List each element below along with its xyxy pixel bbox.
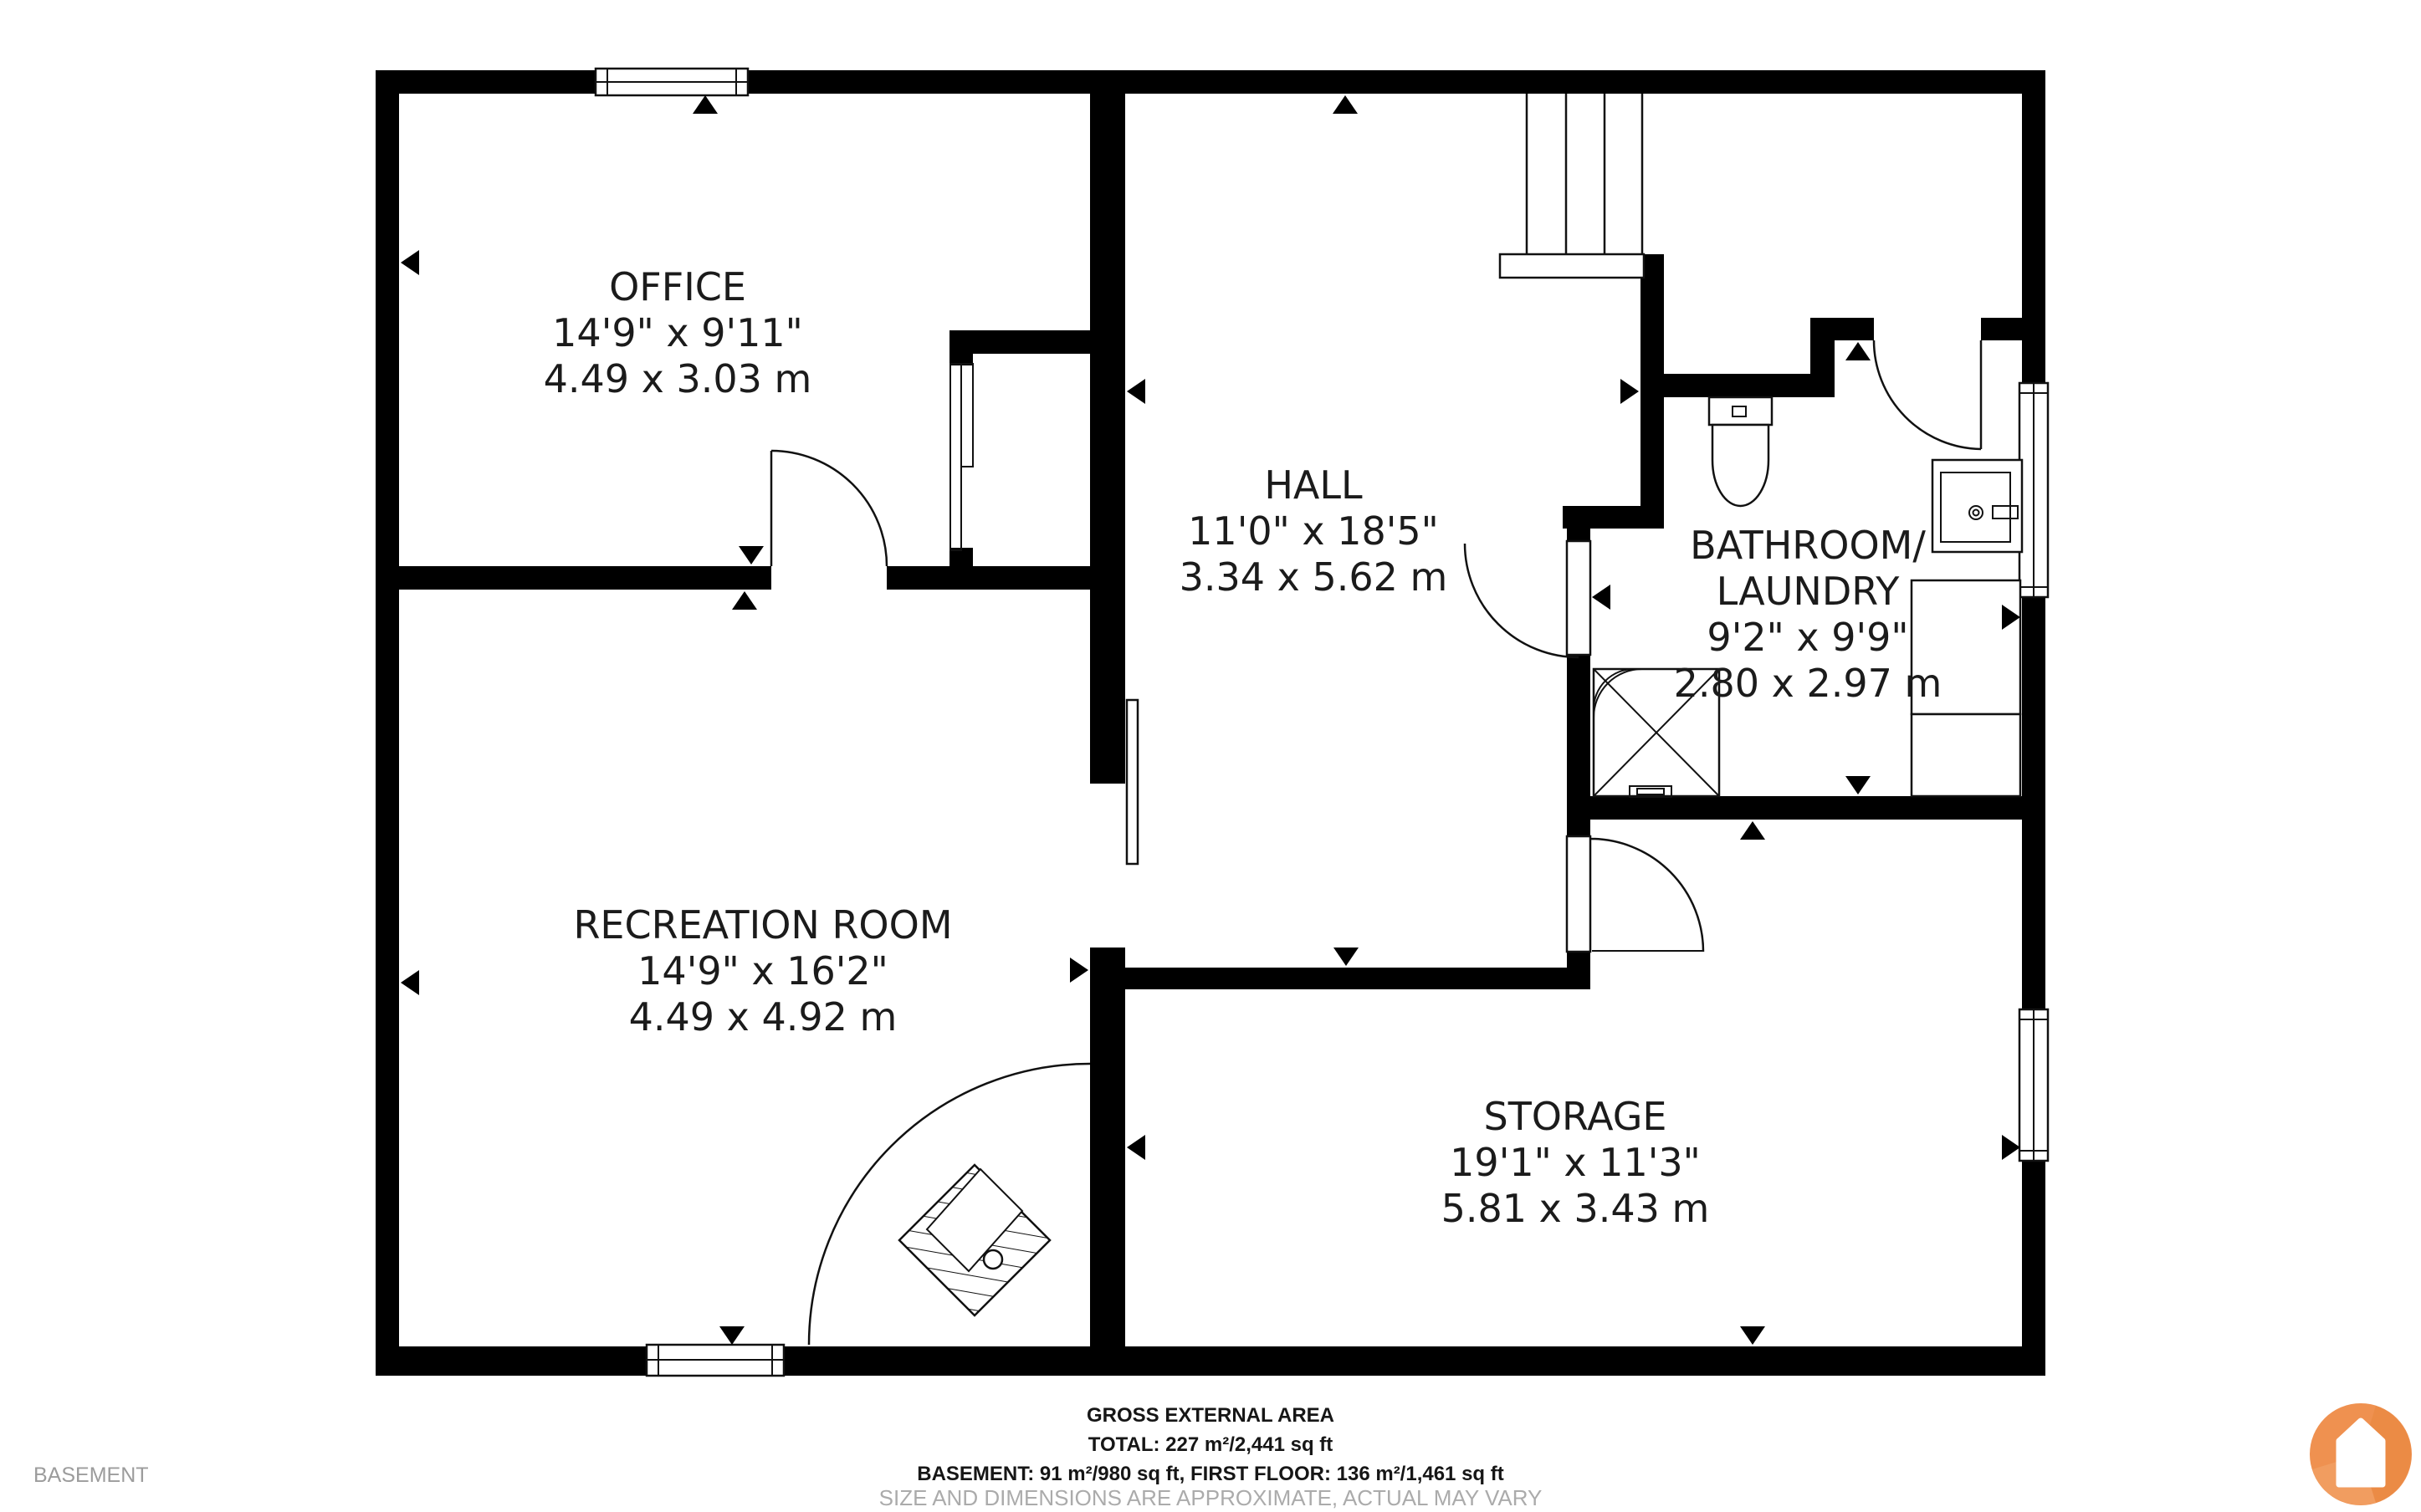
dim-arrow bbox=[1070, 958, 1088, 983]
door-office bbox=[771, 451, 887, 566]
wall-closet-stub-top bbox=[949, 330, 973, 365]
office-label: OFFICE bbox=[609, 264, 746, 309]
wall-stair-side bbox=[1640, 254, 1664, 529]
recreation-dim-metric: 4.49 x 4.92 m bbox=[629, 994, 898, 1039]
wall-hall-storage bbox=[1125, 968, 1590, 989]
footer-total: TOTAL: 227 m²/2,441 sq ft bbox=[1088, 1433, 1333, 1456]
hall-dim-imperial: 11'0" x 18'5" bbox=[1188, 508, 1439, 554]
dim-arrow bbox=[1620, 379, 1639, 404]
wall-left bbox=[376, 70, 399, 1376]
footer: GROSS EXTERNAL AREA TOTAL: 227 m²/2,441 … bbox=[33, 1404, 1542, 1510]
dim-arrow bbox=[1592, 585, 1610, 610]
hall-label: HALL bbox=[1264, 462, 1363, 508]
recreation-label: RECREATION ROOM bbox=[573, 902, 952, 948]
dim-arrow bbox=[1127, 379, 1145, 404]
wall-bath-south bbox=[1590, 796, 2022, 820]
wall-bath-west-mid bbox=[1567, 655, 1590, 836]
door-pocket-hall-rec bbox=[1127, 700, 1138, 864]
windows bbox=[596, 69, 2048, 1376]
door-closet-sliding bbox=[950, 364, 973, 550]
floor-name: BASEMENT bbox=[33, 1463, 149, 1487]
window-bathroom-right bbox=[2019, 383, 2048, 597]
window-storage-right bbox=[2019, 1009, 2048, 1161]
window-recreation-bottom bbox=[647, 1345, 784, 1376]
bathroom-dim-imperial: 9'2" x 9'9" bbox=[1707, 615, 1908, 660]
office-dim-imperial: 14'9" x 9'11" bbox=[552, 310, 803, 355]
dim-arrow bbox=[1740, 1326, 1765, 1345]
wall-bath-north-high-right bbox=[1981, 318, 2022, 340]
wall-office-rec-left bbox=[399, 566, 771, 590]
wall-bath-jog bbox=[1810, 318, 1835, 374]
sink bbox=[1932, 460, 2022, 552]
door-storage bbox=[1567, 836, 1703, 952]
dim-arrow bbox=[732, 591, 757, 610]
toilet bbox=[1709, 397, 1772, 506]
dim-arrow bbox=[1127, 1135, 1145, 1160]
wall-office-rec-right bbox=[887, 566, 1125, 590]
hall-dim-metric: 3.34 x 5.62 m bbox=[1180, 554, 1448, 600]
office-dim-metric: 4.49 x 3.03 m bbox=[544, 356, 812, 401]
stairs bbox=[1500, 94, 1644, 278]
wall-bath-north-high-left bbox=[1835, 318, 1874, 340]
dim-arrow bbox=[1740, 821, 1765, 840]
bathroom-dim-metric: 2.80 x 2.97 m bbox=[1674, 661, 1942, 706]
recreation-dim-imperial: 14'9" x 16'2" bbox=[637, 948, 888, 994]
footer-gross-area: GROSS EXTERNAL AREA bbox=[1087, 1404, 1334, 1427]
dim-arrow bbox=[1333, 948, 1359, 966]
wall-bath-west-stub1 bbox=[1567, 527, 1590, 541]
stair-landing bbox=[1500, 254, 1644, 278]
dim-arrow bbox=[719, 1326, 745, 1345]
dim-arrow bbox=[693, 95, 718, 114]
dim-arrow bbox=[739, 546, 764, 564]
dim-arrow bbox=[1333, 95, 1358, 114]
door-hall-bathroom bbox=[1465, 541, 1590, 657]
floorplan-drawing: OFFICE 14'9" x 9'11" 4.49 x 3.03 m HALL … bbox=[0, 0, 2421, 1512]
wall-bottom bbox=[376, 1346, 2045, 1376]
wall-right bbox=[2022, 70, 2045, 1376]
footer-floors: BASEMENT: 91 m²/980 sq ft, FIRST FLOOR: … bbox=[917, 1463, 1503, 1485]
stove bbox=[899, 1165, 1050, 1315]
storage-dim-metric: 5.81 x 3.43 m bbox=[1441, 1186, 1710, 1231]
dim-arrow bbox=[2002, 1135, 2020, 1160]
dim-arrow bbox=[401, 970, 419, 995]
window-office-top bbox=[596, 69, 748, 95]
floorplan-page: OFFICE 14'9" x 9'11" 4.49 x 3.03 m HALL … bbox=[0, 0, 2421, 1512]
door-bathroom-top bbox=[1874, 340, 1981, 449]
wall-hall-left-lower bbox=[1090, 948, 1125, 1346]
wall-bath-north-low bbox=[1663, 374, 1835, 397]
dim-arrow bbox=[1845, 776, 1871, 794]
home-logo-icon bbox=[2310, 1403, 2412, 1505]
wall-hall-bath-top bbox=[1563, 506, 1663, 529]
storage-dim-imperial: 19'1" x 11'3" bbox=[1450, 1140, 1701, 1185]
dim-arrow bbox=[401, 250, 419, 275]
bathroom-label-2: LAUNDRY bbox=[1717, 569, 1901, 614]
storage-label: STORAGE bbox=[1484, 1094, 1667, 1139]
dim-arrow bbox=[1845, 342, 1871, 360]
footer-disclaimer: SIZE AND DIMENSIONS ARE APPROXIMATE, ACT… bbox=[879, 1485, 1543, 1510]
wall-hall-left-upper bbox=[1090, 94, 1125, 784]
bathroom-label-1: BATHROOM/ bbox=[1690, 523, 1926, 568]
